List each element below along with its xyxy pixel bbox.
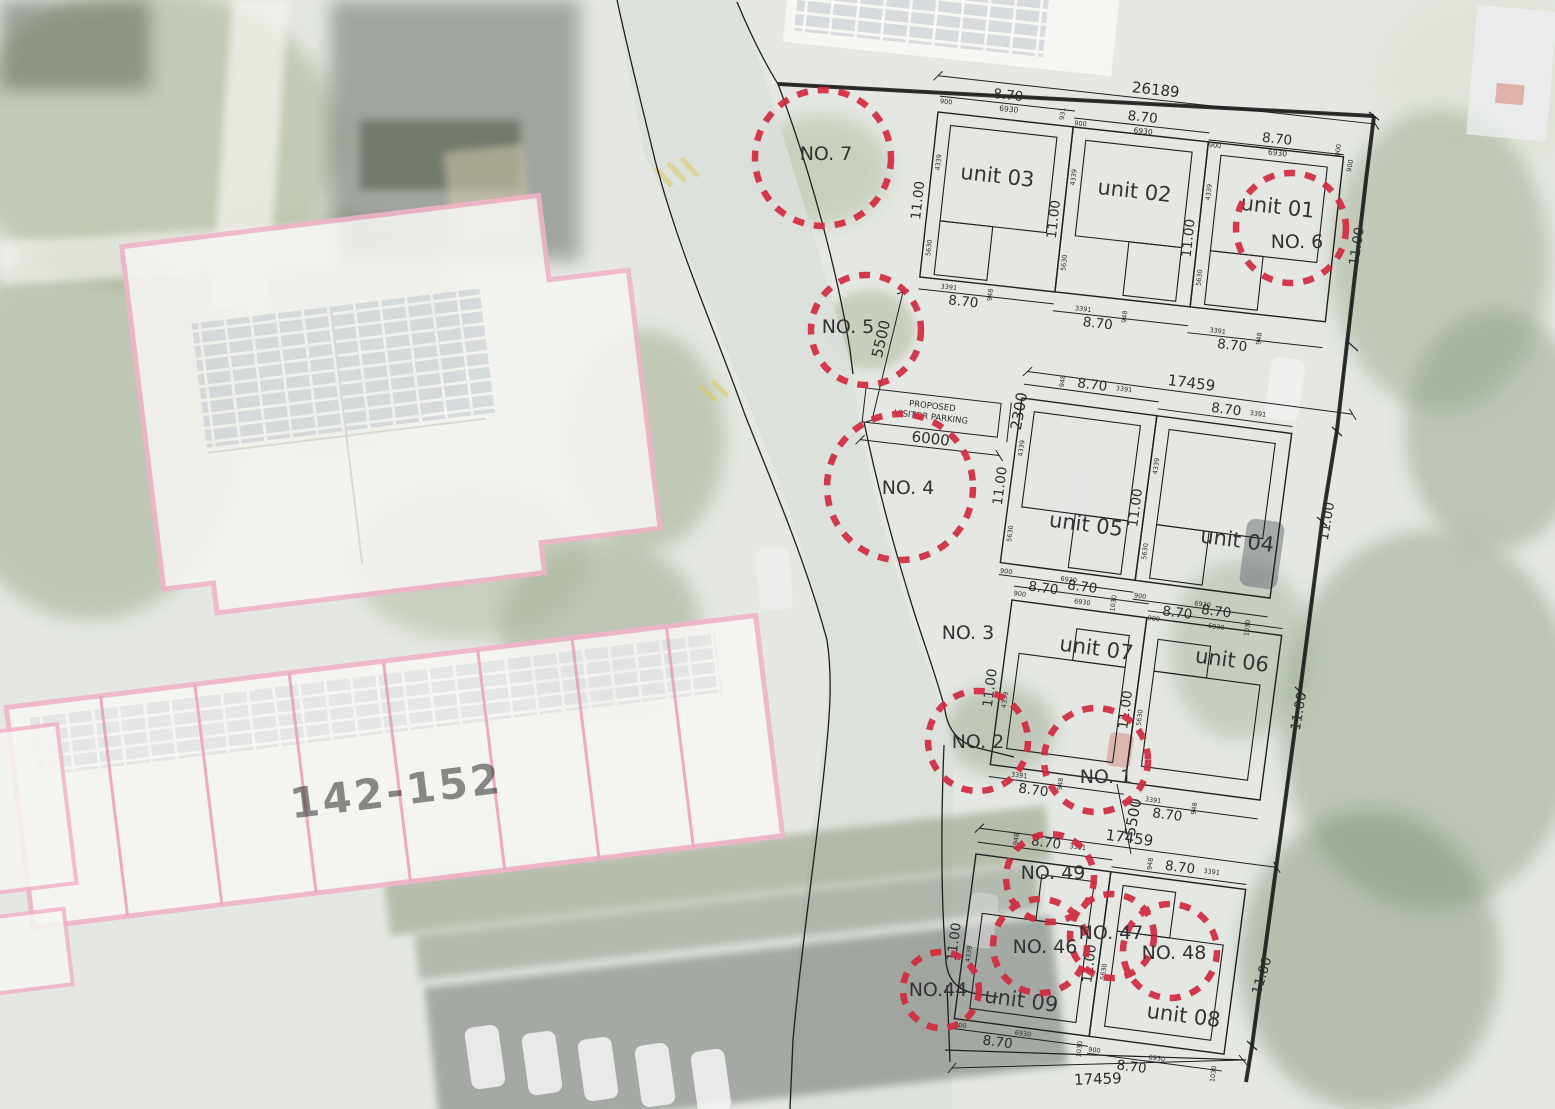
tree-no2-label: NO. 2 (952, 731, 1005, 753)
dim-side-offset: 900 (1133, 591, 1146, 601)
unit-08-label: unit 08 (1145, 999, 1222, 1032)
dim-row-width: 17459 (1074, 1069, 1122, 1089)
dim-front-setback: 4339 (1151, 457, 1161, 474)
dim-plot-width: 8.70 (1082, 314, 1114, 333)
tree-no46-label: NO. 46 (1013, 936, 1078, 958)
dim-rear-strip: 1030 (1074, 1040, 1084, 1057)
tree-no1-label: NO. 1 (1080, 766, 1133, 788)
dim-house-width: 6930 (999, 104, 1019, 115)
dim-front-setback: 4339 (1204, 184, 1214, 201)
dim-house-width: 6930 (1268, 147, 1288, 158)
dim-garage-offset: 948 (1145, 857, 1155, 870)
dim-house-depth: 5630 (1059, 254, 1069, 271)
dim-garage-offset: 948 (1056, 777, 1066, 790)
existing-building-northeast (1466, 5, 1555, 141)
unit-row-2: 17459 8.70 8.70 3391 3391 948 8.70 8.70 … (978, 350, 1359, 641)
dim-garage-offset: 948 (1190, 802, 1200, 815)
dim-plot-depth: 11.00 (990, 466, 1011, 506)
dim-garage-width: 3391 (1209, 326, 1226, 336)
dim-rear-strip: 1030 (1108, 595, 1118, 612)
dim-row-width: 17459 (1167, 371, 1217, 395)
dim-garage-width: 3391 (1075, 304, 1092, 314)
dim-side-offset: 900 (1000, 567, 1013, 577)
dim-plot-width: 8.70 (992, 86, 1024, 105)
dim-garage-offset: 948 (1254, 332, 1263, 345)
dim-plot-depth: 11.00 (908, 180, 928, 220)
dim-side-offset: 900 (1074, 119, 1087, 128)
dim-front-setback: 4339 (1016, 440, 1026, 457)
dim-garage-offset: 948 (1058, 374, 1068, 387)
tree-no5-label: NO. 5 (822, 316, 875, 338)
dim-plot-width: 8.70 (1261, 130, 1293, 149)
dim-side-offset: 900 (1334, 144, 1343, 157)
dim-house-depth: 5630 (1195, 269, 1205, 286)
dim-house-width: 6930 (1074, 597, 1091, 607)
dim-parking-depth: 2300 (1007, 391, 1031, 432)
site-plan-canvas: 142-152 (0, 0, 1555, 1109)
dim-plot-depth: 11.00 (1316, 501, 1338, 542)
tree-no47-label: NO. 47 (1079, 922, 1144, 944)
dim-front-setback: 4339 (934, 154, 944, 171)
dim-plot-width: 8.70 (1216, 336, 1248, 355)
dim-garage-width: 3391 (1010, 770, 1027, 780)
tree-no49-label: NO. 49 (1021, 862, 1086, 884)
tree-no7-label: NO. 7 (800, 143, 853, 165)
tree-circle-no6 (1236, 173, 1346, 283)
dim-garage-width: 3391 (1115, 384, 1132, 394)
tree-no44-label: NO.44 (909, 979, 968, 1001)
unit-03-label: unit 03 (959, 160, 1035, 192)
dim-side-offset: 900 (1208, 141, 1221, 150)
dim-plot-width: 8.70 (947, 292, 979, 311)
dim-house-depth: 5630 (924, 239, 934, 256)
dim-house-depth: 5630 (1135, 709, 1145, 726)
unit-01-label: unit 01 (1240, 191, 1316, 223)
unit-02-label: unit 02 (1096, 175, 1172, 207)
dim-garage-width: 3391 (1249, 409, 1266, 419)
dim-garage-width: 3391 (1203, 867, 1220, 877)
tree-no4-label: NO. 4 (882, 477, 935, 499)
dim-rear-strip: 1030 (1208, 1065, 1218, 1082)
existing-building-north (783, 0, 1122, 76)
dim-side-offset: 900 (1013, 589, 1026, 599)
dim-garage-offset: 948 (986, 288, 995, 301)
tree-no6-label: NO. 6 (1271, 231, 1324, 253)
dim-garage-width: 3391 (940, 282, 957, 292)
tree-no48-label: NO. 48 (1142, 942, 1207, 964)
dim-side-offset: 900 (940, 97, 953, 106)
unit-05-label: unit 05 (1048, 508, 1125, 541)
dim-side-offset: 900 (1088, 1045, 1101, 1055)
dim-garage-width: 3391 (1144, 795, 1161, 805)
dim-house-depth: 5630 (1005, 525, 1015, 542)
dim-plot-width: 8.70 (1017, 781, 1049, 801)
site-plan-page: 142-152 (0, 0, 1555, 1109)
dim-plot-width: 8.70 (1151, 805, 1183, 825)
dim-side-offset: 900 (1147, 614, 1160, 624)
dim-house-depth: 5630 (1140, 543, 1150, 560)
dim-edge-strip: 931 (1058, 107, 1067, 120)
dim-plot-width: 8.70 (1127, 108, 1159, 127)
dim-front-setback: 4339 (1069, 169, 1079, 186)
dim-house-width: 6930 (1133, 126, 1153, 137)
tree-no3-label: NO. 3 (942, 622, 995, 644)
dim-garage-offset: 948 (1120, 310, 1129, 323)
